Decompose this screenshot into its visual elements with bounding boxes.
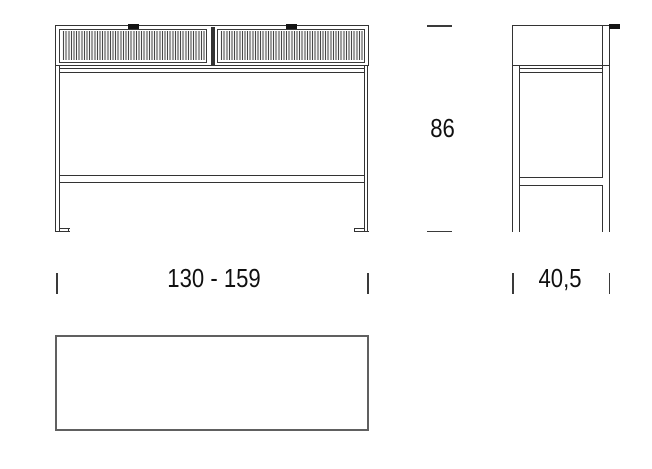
depth-dimension: 40,5 <box>0 0 652 469</box>
depth-dimension-label: 40,5 <box>518 265 603 291</box>
depth-tick-left <box>512 273 514 294</box>
depth-tick-right <box>609 273 611 294</box>
furniture-dimension-drawing: 86 130 - 159 40,5 <box>0 0 652 469</box>
